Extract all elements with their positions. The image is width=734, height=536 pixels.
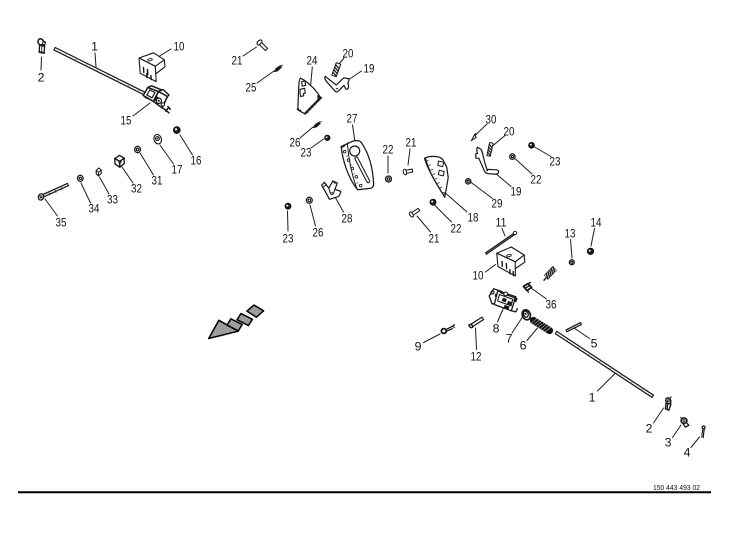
svg-text:2: 2 <box>38 70 45 84</box>
svg-text:5: 5 <box>591 336 598 350</box>
svg-text:21: 21 <box>406 135 417 149</box>
svg-text:20: 20 <box>504 124 515 138</box>
svg-text:21: 21 <box>429 231 440 245</box>
svg-text:29: 29 <box>492 196 503 210</box>
svg-text:19: 19 <box>511 184 522 198</box>
svg-text:21: 21 <box>232 53 243 67</box>
svg-text:36: 36 <box>546 297 557 311</box>
svg-text:150 443 493 02: 150 443 493 02 <box>653 483 700 492</box>
svg-text:25: 25 <box>246 80 257 94</box>
svg-text:33: 33 <box>107 192 118 206</box>
svg-text:3: 3 <box>665 435 672 449</box>
svg-text:1: 1 <box>589 390 596 404</box>
svg-text:23: 23 <box>301 145 312 159</box>
svg-text:22: 22 <box>531 172 542 186</box>
svg-text:11: 11 <box>496 215 507 229</box>
svg-text:34: 34 <box>89 201 100 215</box>
svg-text:27: 27 <box>347 111 358 125</box>
svg-text:26: 26 <box>313 225 324 239</box>
svg-text:22: 22 <box>383 142 394 156</box>
svg-text:2: 2 <box>646 421 653 435</box>
svg-text:17: 17 <box>172 162 183 176</box>
svg-text:22: 22 <box>451 221 462 235</box>
svg-text:10: 10 <box>174 39 185 53</box>
svg-text:8: 8 <box>493 321 500 335</box>
svg-text:32: 32 <box>131 181 142 195</box>
svg-text:6: 6 <box>520 338 527 352</box>
svg-text:28: 28 <box>342 211 353 225</box>
svg-text:35: 35 <box>56 215 67 229</box>
svg-text:31: 31 <box>152 173 163 187</box>
svg-text:13: 13 <box>565 226 576 240</box>
svg-text:1: 1 <box>91 39 98 53</box>
svg-text:4: 4 <box>684 445 691 459</box>
svg-text:16: 16 <box>191 153 202 167</box>
svg-text:10: 10 <box>473 268 484 282</box>
svg-text:24: 24 <box>307 53 318 67</box>
svg-text:9: 9 <box>415 339 422 353</box>
svg-text:23: 23 <box>283 231 294 245</box>
svg-text:19: 19 <box>364 61 375 75</box>
svg-text:15: 15 <box>121 113 132 127</box>
svg-text:18: 18 <box>468 210 479 224</box>
svg-text:26: 26 <box>290 135 301 149</box>
svg-text:14: 14 <box>591 215 602 229</box>
svg-text:12: 12 <box>471 349 482 363</box>
svg-text:7: 7 <box>506 331 513 345</box>
